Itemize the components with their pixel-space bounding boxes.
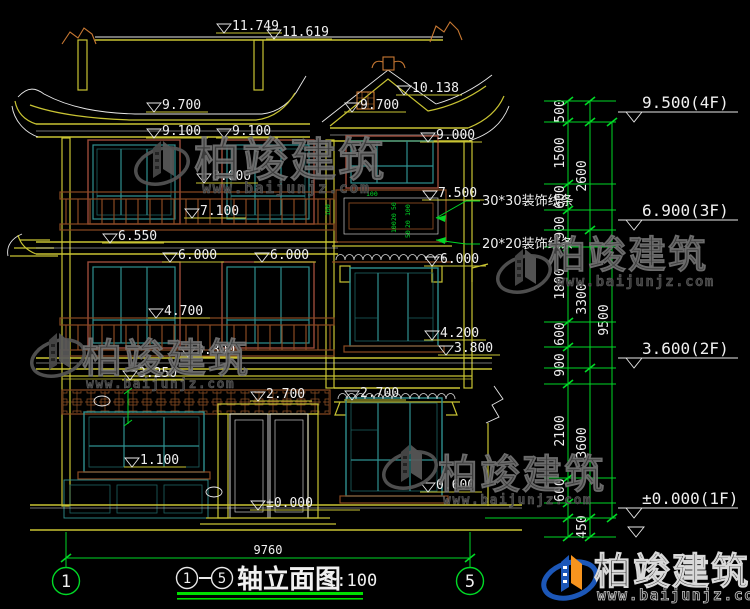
detail-dim-label: 100 (390, 221, 398, 233)
dim-chain-label: 500 (553, 99, 568, 122)
dim-chain-label: 2600 (575, 160, 590, 191)
watermark-brand: 柏竣建筑 (438, 452, 606, 498)
logo-window (51, 358, 55, 361)
elevation-mark-label: 6.000 (270, 248, 309, 263)
axis-to-label: 5 (218, 571, 226, 587)
elevation-mark-label: 4.200 (440, 326, 479, 341)
detail-dim-label: 20 (404, 220, 412, 228)
logo-window (563, 566, 567, 569)
elevation-mark-label: 6.550 (118, 229, 157, 244)
elevation-mark-label: 9.700 (360, 98, 399, 113)
elevation-mark-label: 11.749 (232, 19, 279, 34)
level-flag-label: 6.900(3F) (642, 201, 729, 220)
title-scale: 1:100 (326, 571, 377, 591)
elevation-mark-label: 2.700 (266, 387, 305, 402)
watermark-url: www.baijunjz.com (86, 377, 235, 392)
dim-chain-label: 450 (575, 515, 590, 538)
detail-dim-label: 100 (404, 204, 412, 216)
logo-window (403, 456, 407, 459)
logo-window (563, 573, 567, 576)
elevation-mark-label: 9.700 (162, 98, 201, 113)
watermark-url: www.baijunjz.com (597, 586, 750, 604)
elevation-mark-label: ±0.000 (266, 496, 313, 511)
logo-window (51, 344, 55, 347)
watermark-url: www.baijunjz.com (202, 179, 371, 197)
title-underline-thin (177, 598, 363, 600)
axis-from-label: 1 (183, 571, 191, 587)
elevation-mark-label: 6.000 (440, 252, 479, 267)
elevation-mark-label: 7.100 (200, 204, 239, 219)
elevation-mark-label: 6.000 (178, 248, 217, 263)
elevation-mark-label: 1.100 (140, 453, 179, 468)
elevation-mark-label: 2.700 (360, 386, 399, 401)
title-underline-thick (177, 592, 363, 595)
dim-chain-label: 600 (553, 322, 568, 345)
bottom-dim-label: 9760 (254, 543, 283, 557)
cad-sheet: 11.74911.6199.7009.70010.1389.1009.1009.… (0, 0, 750, 609)
leader-note-label: 30*30装饰线条 (482, 193, 574, 209)
logo-window (517, 274, 521, 277)
watermark-brand: 柏竣建筑 (82, 336, 250, 382)
elevation-mark-label: 9.000 (436, 128, 475, 143)
detail-dim-label: 50 (390, 202, 398, 210)
dim-chain-label: 1500 (553, 137, 568, 168)
logo-window (403, 470, 407, 473)
dim-chain-label: 9500 (597, 304, 612, 335)
logo-window (517, 260, 521, 263)
dim-chain-label: 2100 (553, 415, 568, 446)
elevation-mark-label: 7.500 (438, 186, 477, 201)
logo-window (563, 580, 567, 583)
detail-dim-label: 50 (404, 230, 412, 238)
elevation-mark-label: 3.800 (454, 341, 493, 356)
dim-chain-label: 900 (553, 353, 568, 376)
elevation-mark-label: 4.700 (164, 304, 203, 319)
detail-dim-label: 20 (390, 213, 398, 221)
grid-bubble-label: 1 (61, 572, 71, 592)
watermark-brand: 柏竣建筑 (548, 233, 708, 277)
elevation-mark-label: 10.138 (412, 81, 459, 96)
logo-window (51, 351, 55, 354)
detail-dim-label: 100 (324, 204, 332, 216)
watermark-url: www.baijunjz.com (443, 493, 592, 508)
grid-bubble-label: 5 (465, 572, 475, 592)
logo-window (517, 267, 521, 270)
level-flag-label: ±0.000(1F) (642, 489, 738, 508)
logo-window (155, 152, 159, 155)
level-flag-label: 9.500(4F) (642, 93, 729, 112)
logo-window (155, 166, 159, 169)
elevation-mark-label: 11.619 (282, 25, 329, 40)
elevation-drawing: 11.74911.6199.7009.70010.1389.1009.1009.… (0, 0, 750, 609)
logo-window (155, 159, 159, 162)
level-flag-label: 3.600(2F) (642, 339, 729, 358)
logo-window (403, 463, 407, 466)
watermark-url: www.baijunjz.com (556, 274, 715, 290)
